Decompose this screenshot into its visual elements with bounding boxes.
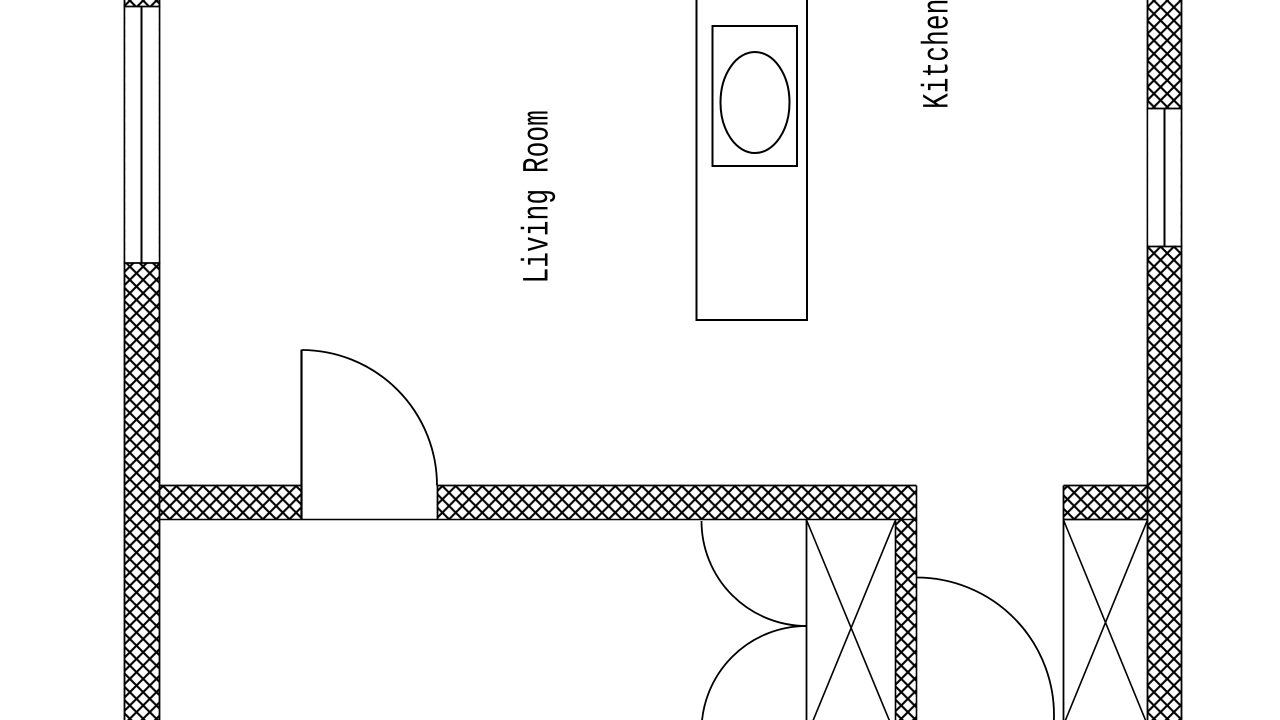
svg-text:Living Room: Living Room — [517, 110, 559, 283]
svg-text:Kitchen: Kitchen — [917, 0, 959, 109]
